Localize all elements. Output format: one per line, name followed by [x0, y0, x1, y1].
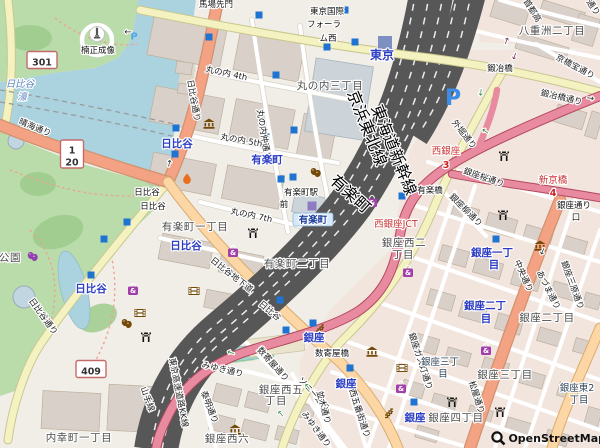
svg-text:20: 20 — [65, 157, 79, 168]
subway-entrance-icon — [273, 72, 280, 79]
map-label: 銀座三丁目 — [477, 368, 533, 381]
map-label: 銀座一丁 — [471, 246, 513, 259]
map-label: 日比谷 — [134, 187, 160, 198]
map-label: 丁目 — [265, 395, 287, 407]
map-label: 馬場先門 — [199, 0, 233, 10]
map-label: 口 — [572, 213, 581, 223]
svg-text:&: & — [483, 347, 489, 355]
map-viewport[interactable]: PP&&&&&& 馬場先門丸の内 4th丸の内仲通り丸の内 5th丸の内 7th… — [0, 0, 600, 448]
map-label: 3 — [443, 160, 450, 171]
theater-icon — [121, 318, 133, 328]
map-label: 東京国際 — [310, 6, 345, 17]
subway-entrance-icon — [278, 176, 285, 183]
attribution[interactable]: OpenStreetMap — [490, 430, 600, 446]
map-label: 日比谷 — [75, 282, 107, 295]
map-label: 目 — [481, 313, 492, 325]
magnifier-icon — [490, 430, 506, 446]
map-label: 銀座二丁目 — [519, 311, 575, 324]
subway-entrance-icon — [324, 44, 331, 51]
map-label: 銀座西二 — [382, 236, 426, 249]
subway-entrance-icon — [291, 127, 298, 134]
map-label: 目 — [489, 259, 500, 271]
route-badge: 301 — [27, 52, 57, 69]
map-label: 有楽橋 — [417, 185, 443, 196]
svg-text:1: 1 — [69, 145, 76, 156]
subway-entrance-icon — [411, 399, 418, 406]
subway-entrance-icon — [310, 320, 317, 327]
map-label: 銀座通り — [557, 200, 591, 211]
map-label: 前 — [280, 199, 289, 210]
torii-icon — [141, 333, 151, 343]
subway-entrance-icon — [290, 174, 297, 181]
subway-entrance-icon — [101, 236, 108, 243]
subway-entrance-icon — [173, 125, 180, 132]
map-label: 有楽町 — [251, 153, 283, 166]
map-label: 八重洲二丁目 — [519, 24, 586, 37]
map-label: 銀座東2 — [560, 382, 595, 394]
map-label: ム西 — [319, 34, 336, 44]
svg-text:&: & — [230, 249, 236, 257]
route-badge: 409 — [76, 361, 106, 378]
map-label: 銀座 — [304, 331, 325, 344]
cinema-icon — [397, 364, 408, 372]
jr-station-square-icon — [308, 202, 317, 211]
map-label: フォーラ — [307, 20, 341, 30]
map-label: 丁目 — [392, 249, 414, 261]
map-label: 東京 — [370, 47, 394, 62]
cinema-icon — [189, 287, 200, 295]
map-label: 丁目 — [569, 395, 588, 406]
map-label: 銀座三丁 — [421, 356, 459, 368]
map-label: 銀座西六 — [205, 432, 249, 445]
map-label: 日比谷 — [140, 201, 166, 212]
statue-icon — [90, 27, 105, 42]
map-label: 濠 — [17, 91, 28, 103]
map-label: 西銀座JCT — [374, 218, 418, 230]
subway-entrance-icon — [277, 297, 284, 304]
map-label: → — [475, 88, 486, 97]
map-label: 有楽町一丁目 — [162, 220, 229, 233]
subway-entrance-icon — [352, 39, 359, 46]
subway-entrance-icon — [493, 236, 500, 243]
subway-entrance-icon — [124, 219, 131, 226]
svg-text:&: & — [130, 287, 136, 295]
shop-bag-icon: & — [228, 246, 238, 258]
torii-icon — [248, 229, 258, 239]
map-label: 日比谷 — [170, 239, 202, 252]
subway-entrance-icon — [256, 12, 263, 19]
map-label: 公園 — [0, 252, 21, 264]
map-label: 新京橋 — [539, 174, 568, 186]
svg-text:409: 409 — [81, 367, 101, 378]
map-label: 銀座二丁 — [464, 299, 506, 312]
map-label: 内幸町一丁目 — [46, 431, 113, 444]
map-label: 数寄屋橋 — [315, 348, 350, 359]
map-canvas[interactable]: PP&&&&&& 馬場先門丸の内 4th丸の内仲通り丸の内 5th丸の内 7th… — [0, 0, 600, 448]
map-label: 4 — [550, 188, 557, 199]
attribution-text: OpenStreetMap — [508, 432, 600, 445]
map-label: 楠正成像 — [81, 45, 116, 56]
subway-entrance-icon — [206, 34, 213, 41]
map-label: 西銀座 — [432, 145, 461, 157]
map-label: → — [124, 26, 132, 36]
subway-entrance-icon — [283, 327, 290, 334]
route-badge: 120 — [61, 140, 84, 168]
svg-text:&: & — [398, 385, 404, 393]
map-label: 有楽町駅 — [284, 187, 319, 198]
map-label: 日比谷 — [6, 79, 36, 90]
subway-entrance-icon — [347, 365, 354, 372]
map-label: 銀座 — [405, 411, 426, 424]
map-label: 目 — [438, 369, 448, 380]
svg-text:301: 301 — [32, 58, 52, 69]
map-label: 鍛冶橋 — [487, 63, 513, 74]
map-label: 有楽町二丁目 — [264, 257, 331, 270]
svg-text:P: P — [445, 86, 461, 111]
subway-entrance-icon — [172, 151, 179, 158]
parking-large-icon: P — [445, 86, 461, 111]
svg-text:&: & — [405, 269, 411, 277]
map-label: 銀座 — [336, 377, 357, 390]
subway-entrance-icon — [88, 272, 95, 279]
map-label: 銀座四丁目 — [428, 411, 484, 424]
map-label: → — [275, 407, 288, 420]
map-label: 丸の内三丁目 — [297, 79, 364, 92]
cinema-icon — [135, 309, 146, 317]
map-label: 丸の内 7th — [230, 206, 274, 226]
map-label: 有楽町 — [299, 214, 328, 226]
shop-bag-icon: & — [128, 284, 138, 296]
map-label: 日比谷 — [161, 137, 193, 150]
